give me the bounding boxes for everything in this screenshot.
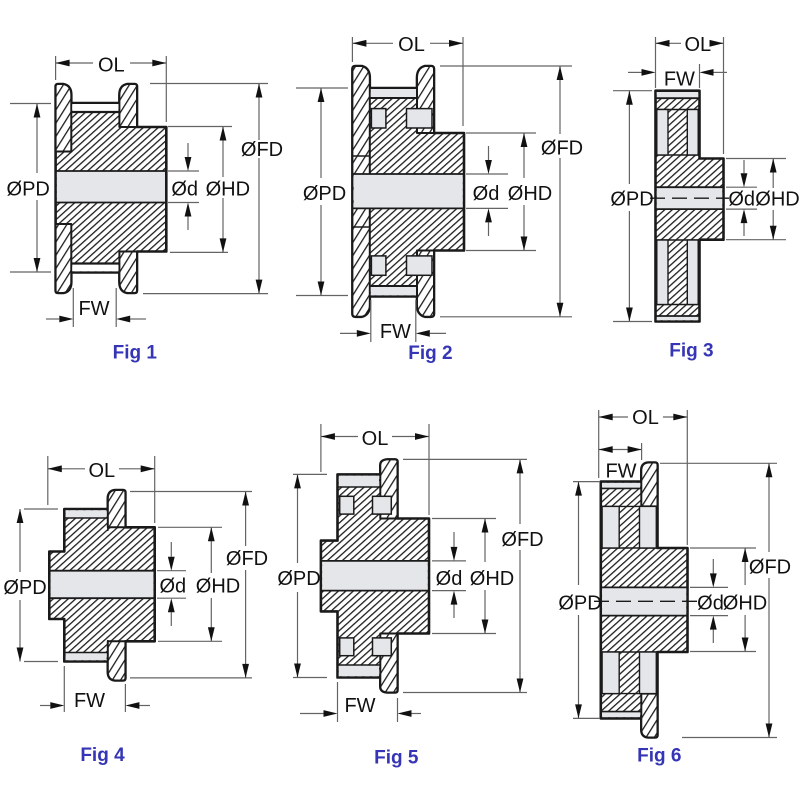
svg-text:Fig 2: Fig 2	[408, 343, 452, 364]
svg-text:OL: OL	[684, 34, 711, 56]
svg-text:ØPD: ØPD	[558, 593, 601, 615]
svg-text:OL: OL	[398, 34, 425, 56]
svg-text:FW: FW	[344, 695, 375, 717]
svg-text:ØPD: ØPD	[610, 189, 653, 211]
svg-text:Ød: Ød	[171, 179, 198, 201]
svg-text:Fig 6: Fig 6	[637, 746, 681, 767]
svg-text:ØHD: ØHD	[206, 179, 250, 201]
svg-text:FW: FW	[78, 298, 109, 320]
svg-text:FW: FW	[664, 69, 695, 91]
svg-text:Fig 4: Fig 4	[80, 745, 125, 766]
svg-text:Ød: Ød	[473, 183, 500, 205]
svg-text:ØHD: ØHD	[470, 568, 514, 590]
svg-text:Fig 1: Fig 1	[113, 343, 158, 364]
svg-text:OL: OL	[98, 55, 125, 77]
svg-text:ØHD: ØHD	[723, 593, 767, 615]
svg-text:FW: FW	[74, 690, 105, 712]
svg-text:FW: FW	[605, 461, 636, 483]
svg-text:Ød: Ød	[728, 189, 755, 211]
svg-text:ØPD: ØPD	[303, 183, 346, 205]
svg-text:ØHD: ØHD	[755, 189, 799, 211]
svg-text:ØPD: ØPD	[3, 577, 46, 599]
svg-text:ØFD: ØFD	[241, 139, 283, 161]
svg-text:Ød: Ød	[159, 576, 186, 598]
svg-text:ØFD: ØFD	[749, 557, 791, 579]
svg-text:ØHD: ØHD	[508, 183, 552, 205]
svg-text:FW: FW	[380, 321, 411, 343]
svg-text:ØFD: ØFD	[501, 529, 543, 551]
svg-text:ØHD: ØHD	[196, 576, 240, 598]
svg-text:Ød: Ød	[436, 568, 463, 590]
svg-text:OL: OL	[632, 407, 659, 429]
svg-text:OL: OL	[88, 460, 115, 482]
svg-text:Ød: Ød	[697, 593, 724, 615]
svg-text:ØPD: ØPD	[277, 568, 320, 590]
svg-text:Fig 5: Fig 5	[374, 748, 419, 769]
svg-text:Fig 3: Fig 3	[669, 341, 713, 362]
svg-text:OL: OL	[362, 428, 389, 450]
svg-text:ØPD: ØPD	[7, 179, 50, 201]
svg-text:ØFD: ØFD	[541, 138, 583, 160]
svg-text:ØFD: ØFD	[226, 548, 268, 570]
